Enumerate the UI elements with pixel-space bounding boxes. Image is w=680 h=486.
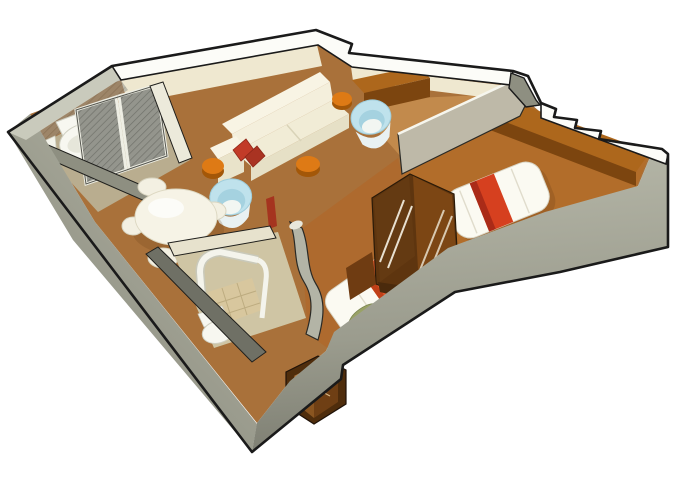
stool-top	[202, 158, 224, 174]
table-highlight	[148, 198, 184, 218]
floor-plan-image	[0, 0, 680, 486]
stool-top	[296, 156, 320, 172]
floor-plan-svg	[0, 0, 680, 486]
stool-top	[332, 92, 352, 106]
